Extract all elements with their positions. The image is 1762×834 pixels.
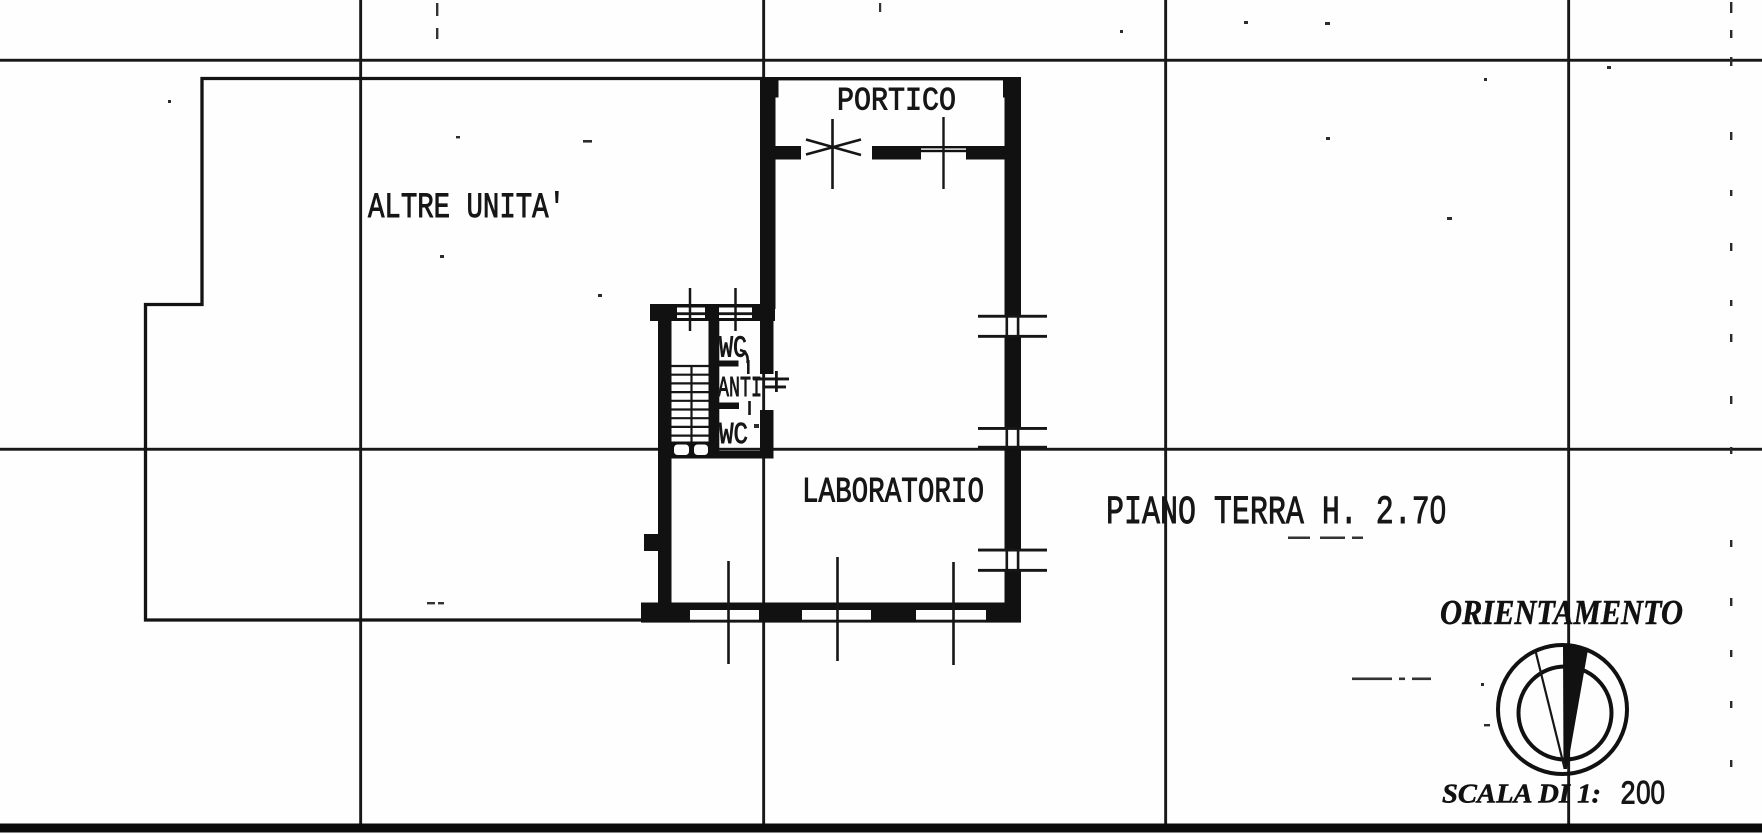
- svg-text:SCALA DI 1:: SCALA DI 1:: [1442, 779, 1601, 809]
- svg-text:PORTICO: PORTICO: [837, 83, 956, 120]
- svg-text:ORIENTAMENTO: ORIENTAMENTO: [1440, 593, 1683, 632]
- svg-text:200: 200: [1620, 775, 1665, 814]
- svg-text:ALTRE UNITA': ALTRE UNITA': [368, 188, 565, 228]
- svg-text:WC: WC: [719, 418, 748, 453]
- svg-text:ANTI: ANTI: [718, 372, 762, 405]
- svg-text:LABORATORIO: LABORATORIO: [802, 473, 984, 513]
- svg-text:PIANO TERRA H. 2.70: PIANO TERRA H. 2.70: [1106, 489, 1446, 536]
